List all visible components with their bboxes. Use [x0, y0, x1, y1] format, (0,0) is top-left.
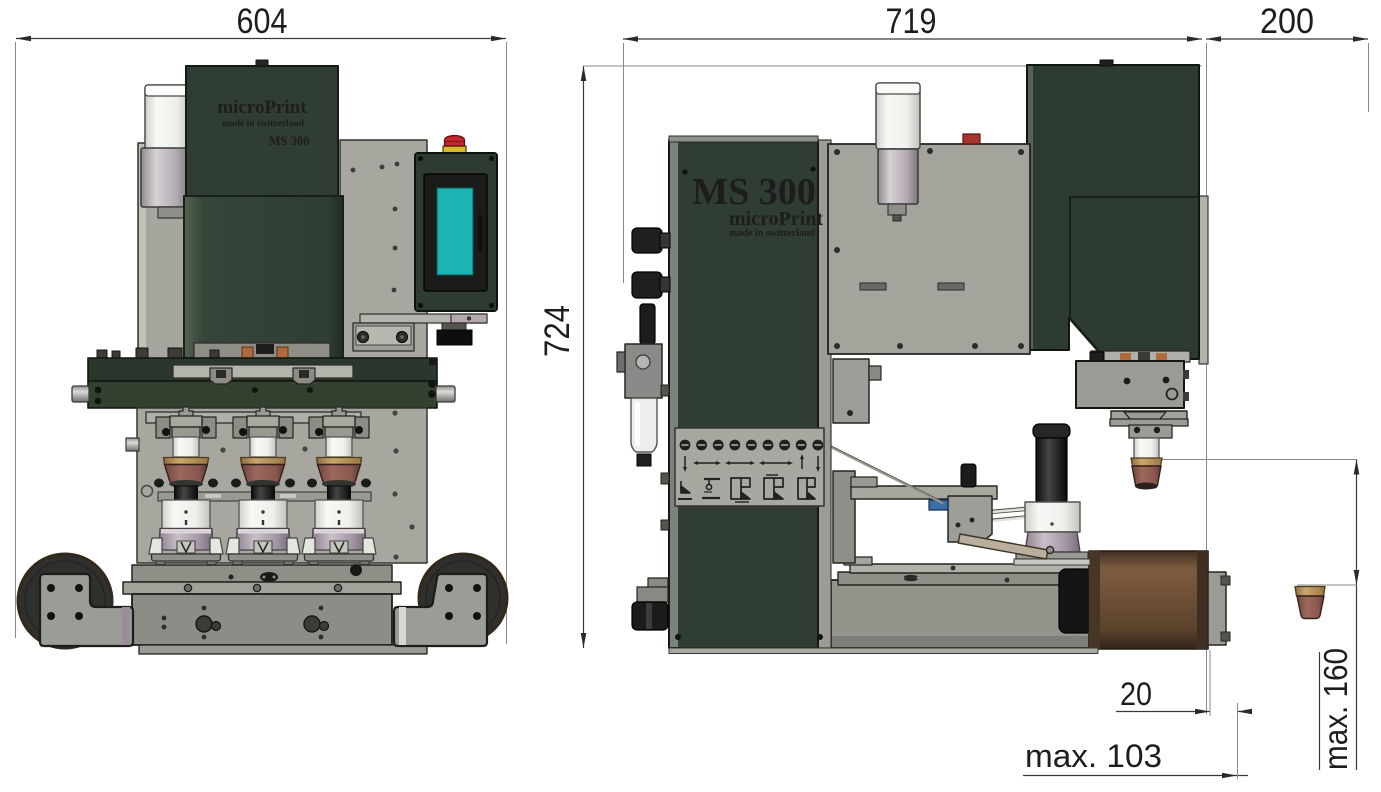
svg-text:max. 160: max. 160	[1317, 648, 1354, 770]
svg-text:microPrint: microPrint	[729, 208, 823, 230]
svg-text:604: 604	[237, 2, 288, 41]
svg-text:MS 300: MS 300	[269, 134, 310, 148]
svg-text:719: 719	[886, 2, 937, 41]
svg-text:20: 20	[1120, 676, 1152, 712]
svg-text:MS 300: MS 300	[692, 171, 816, 213]
svg-text:made in switzerland: made in switzerland	[729, 228, 816, 239]
svg-text:200: 200	[1260, 2, 1314, 41]
svg-text:724: 724	[538, 305, 577, 357]
svg-text:microPrint: microPrint	[217, 97, 307, 118]
svg-text:made in switzerland: made in switzerland	[222, 119, 305, 129]
svg-text:max. 103: max. 103	[1025, 738, 1162, 774]
